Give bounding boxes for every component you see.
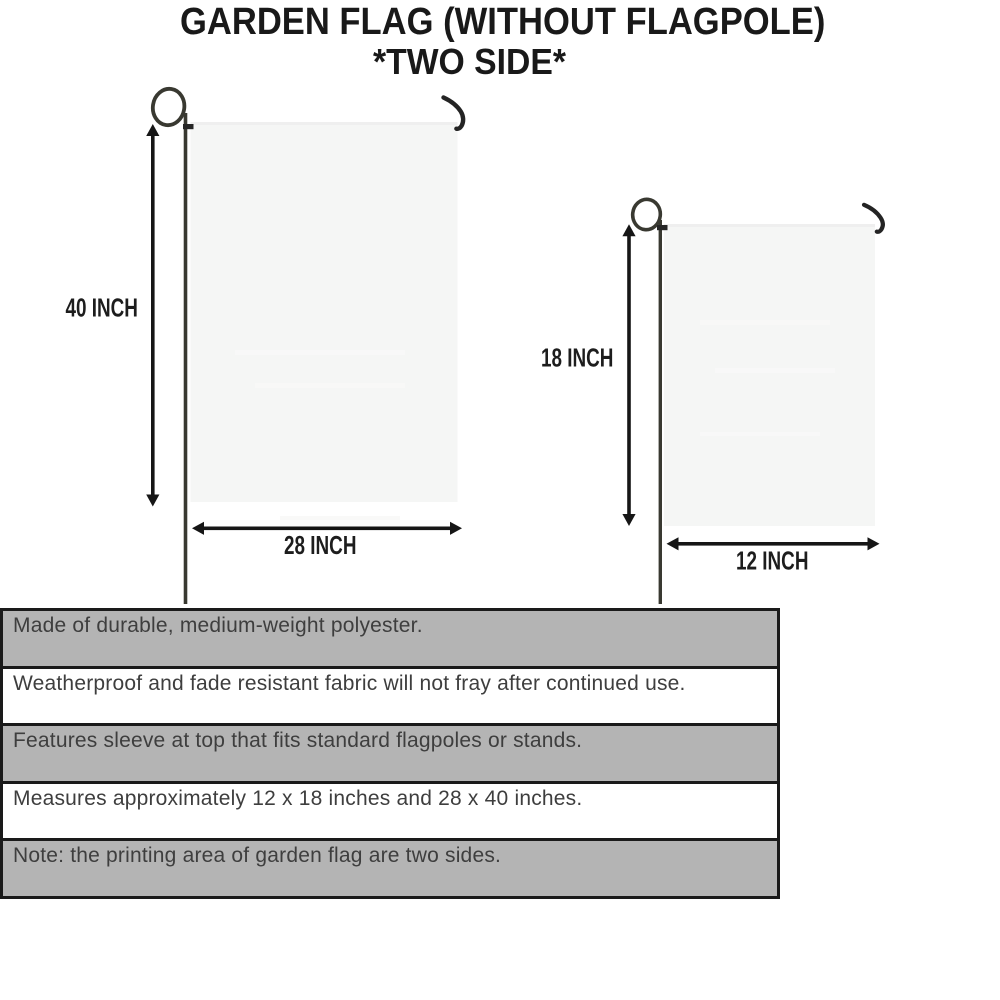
svg-text:18 INCH: 18 INCH bbox=[541, 344, 613, 372]
svg-text:40 INCH: 40 INCH bbox=[66, 294, 138, 322]
svg-text:*TWO SIDE*: *TWO SIDE* bbox=[373, 42, 566, 82]
svg-text:12 INCH: 12 INCH bbox=[736, 547, 808, 575]
svg-text:28 INCH: 28 INCH bbox=[284, 531, 356, 559]
svg-text:GARDEN FLAG (WITHOUT FLAGPOLE): GARDEN FLAG (WITHOUT FLAGPOLE) bbox=[180, 0, 825, 42]
